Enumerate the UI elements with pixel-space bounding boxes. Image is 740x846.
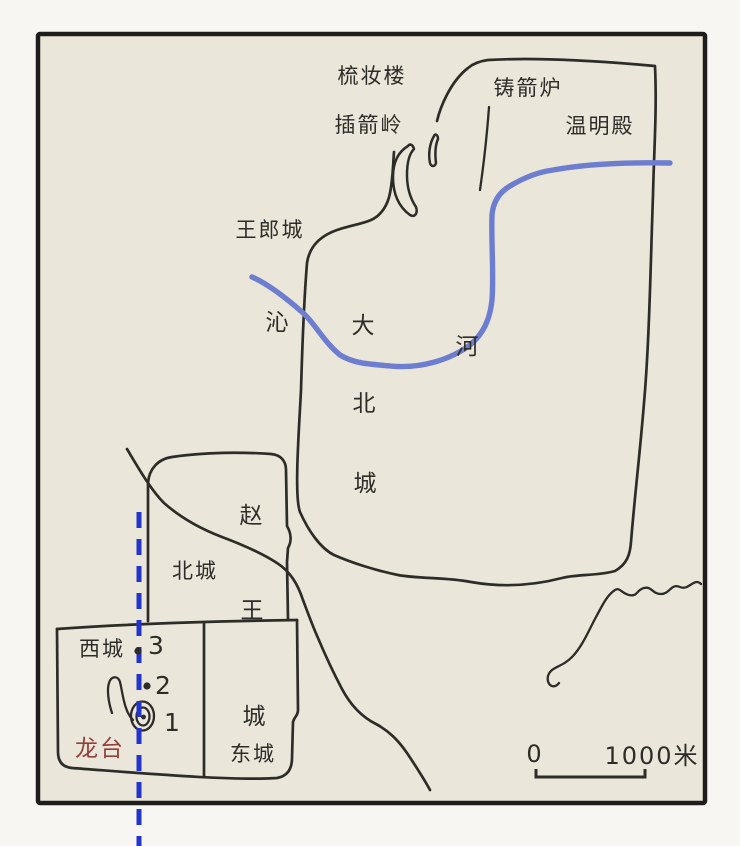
site-2-dot [143, 682, 150, 689]
label-zhaowangcheng-char-zhao: 赵 [240, 503, 265, 529]
label-river-he-char: 河 [456, 334, 481, 360]
label-dabeicheng-char-bei: 北 [353, 391, 378, 417]
label-zhaowangcheng-char-wang: 王 [241, 598, 266, 624]
label-zhaowangcheng-char-cheng: 城 [243, 704, 268, 730]
label-dabeicheng-char-da: 大 [352, 313, 377, 339]
map-photo: 梳妆楼 铸箭炉 插箭岭 温明殿 王郎城 沁 河 大 北 城 赵 王 城 北城 西… [0, 0, 740, 846]
label-chajianling: 插箭岭 [335, 113, 404, 137]
label-xicheng: 西城 [79, 637, 125, 661]
scale-bar-start-label: 0 [526, 740, 543, 768]
label-river-qin-char: 沁 [266, 310, 291, 336]
label-shuzhuanglou: 梳妆楼 [338, 64, 407, 88]
label-site-1: 1 [164, 708, 182, 737]
site-1-dot [141, 715, 146, 720]
label-zhujianlu: 铸箭炉 [494, 76, 563, 100]
site-3-dot [134, 647, 141, 654]
label-wenmingdian: 温明殿 [566, 114, 635, 138]
label-dongcheng: 东城 [230, 742, 276, 766]
label-dabeicheng-char-cheng: 城 [354, 471, 379, 497]
label-longtai: 龙台 [75, 736, 125, 762]
label-wanglangcheng: 王郎城 [236, 218, 305, 242]
label-site-3: 3 [148, 631, 166, 660]
label-site-2: 2 [155, 671, 173, 700]
scale-bar-end-label: 1000米 [604, 742, 699, 770]
archaeological-map-canvas: 梳妆楼 铸箭炉 插箭岭 温明殿 王郎城 沁 河 大 北 城 赵 王 城 北城 西… [0, 0, 740, 846]
label-beicheng: 北城 [172, 559, 218, 583]
